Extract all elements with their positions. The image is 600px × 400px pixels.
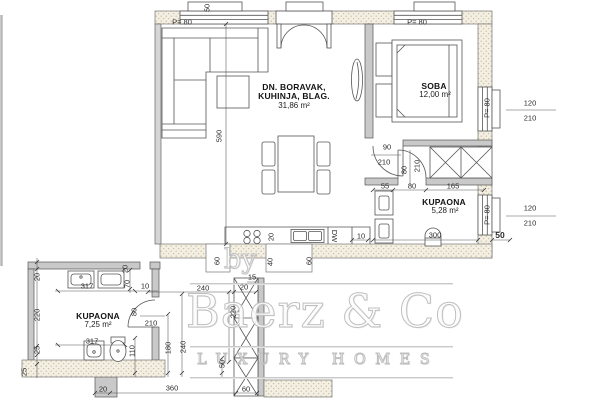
dim-shaft-end: 50 [218, 360, 226, 368]
window-top-right [394, 2, 462, 24]
dim-shaft-width: 20 [240, 283, 248, 291]
dim-bedroom-door-width: 90 [383, 143, 391, 151]
dim-bottom-seg1: 20 [99, 385, 107, 393]
window-right-lower-height: 210 [524, 219, 537, 227]
watermark-rule-middle [190, 346, 453, 347]
dim-bathroom-door-width-rot: 80 [400, 166, 408, 174]
sofa [162, 28, 268, 138]
dim-living-length: 590 [215, 130, 223, 143]
bathroom2-toilet [110, 337, 126, 362]
watermark-by: by [224, 244, 257, 275]
bathroom-area: 5,28 m² [431, 207, 458, 215]
dim-b2-door-width: 80 [130, 308, 138, 316]
living-room-name-line2: KUHINJA, BLAG. [258, 92, 330, 101]
closet [430, 147, 492, 178]
dim-b2-toilet-offset: 110 [128, 345, 136, 357]
bathroom-name: KUPAONA [422, 198, 466, 207]
dim-stove-gap: 20 [267, 233, 275, 241]
window-right-lower-width: 120 [524, 204, 537, 212]
plant [352, 59, 363, 101]
dim-hall-height-inner: 180 [164, 342, 172, 355]
dim-box-depth: 50 [203, 4, 211, 12]
dim-b2-left-25a: 25 [33, 346, 41, 354]
dim-b2-left-220: 220 [33, 309, 41, 322]
watermark-rule-bottom [190, 377, 453, 378]
dim-bath-segment: 55 [381, 182, 389, 190]
bathroom2-vanity [68, 271, 124, 288]
dim-counter-gap: 10 [357, 232, 365, 240]
bedroom-area: 12,00 m² [419, 91, 451, 99]
floor-plan: DN. BORAVAK, KUHINJA, BLAG. 31,86 m² SOB… [0, 0, 600, 400]
bathroom2-area: 7,25 m² [84, 321, 111, 329]
dim-bath-door: 80 [408, 182, 416, 190]
parapet-top-left: P= 80 [172, 18, 192, 26]
dim-bottom-seg3: 60 [242, 385, 250, 393]
parapet-right-lower: P= 80 [483, 205, 491, 225]
coffee-table [217, 76, 249, 108]
bathroom2-bottom-wall [22, 360, 165, 377]
window-top-left [180, 2, 268, 24]
service-shaft-hatch [264, 380, 332, 397]
dim-b2-jamb: 70 [123, 280, 131, 288]
dim-b2-top-width: 317 [81, 282, 94, 290]
watermark-tagline: LUXURY HOMES [197, 352, 439, 368]
dim-b2-tick: 20 [121, 265, 129, 273]
dim-hall-height-outer: 240 [179, 341, 187, 354]
dim-b2-left-25b: 25 [20, 368, 28, 376]
stove [244, 230, 260, 243]
bedroom-name: SOBA [421, 82, 446, 91]
parapet-right-upper: P= 80 [483, 98, 491, 118]
dim-bedroom-door-height: 210 [378, 158, 391, 166]
balcony-door [276, 2, 332, 48]
window-right-upper-width: 120 [524, 99, 537, 107]
dim-niche-right: 60 [305, 257, 313, 265]
dim-b2-left-20: 20 [33, 273, 41, 281]
dim-entry-width: 60 [213, 257, 221, 265]
dishwasher-label: DW [330, 230, 338, 243]
dim-bathroom-door-height-rot: 210 [413, 160, 421, 173]
dim-shaft-offset: 15 [248, 273, 256, 281]
kitchen-sink [291, 230, 324, 243]
dim-bottom-seg2: 360 [166, 384, 179, 392]
dim-niche-width: 40 [266, 258, 274, 266]
living-room-area: 31,86 m² [278, 102, 310, 110]
dim-b2-bottom-width: 317 [86, 337, 99, 345]
dim-hall-width: 240 [197, 284, 210, 292]
dim-b2-gap: 10 [141, 282, 149, 290]
dining-table [262, 136, 330, 194]
window-right-upper-height: 210 [524, 114, 537, 122]
dim-hall-length: 220 [229, 306, 237, 319]
parapet-top-right: P= 80 [407, 18, 427, 26]
dim-corner: 50 [495, 231, 504, 240]
dim-b2-door-height: 210 [145, 319, 158, 327]
dim-bath-width: 300 [429, 231, 442, 239]
bed [376, 40, 462, 122]
bathroom-fixtures [375, 191, 393, 243]
dim-closet-width: 165 [447, 182, 460, 190]
bathroom2-name: KUPAONA [76, 312, 120, 321]
